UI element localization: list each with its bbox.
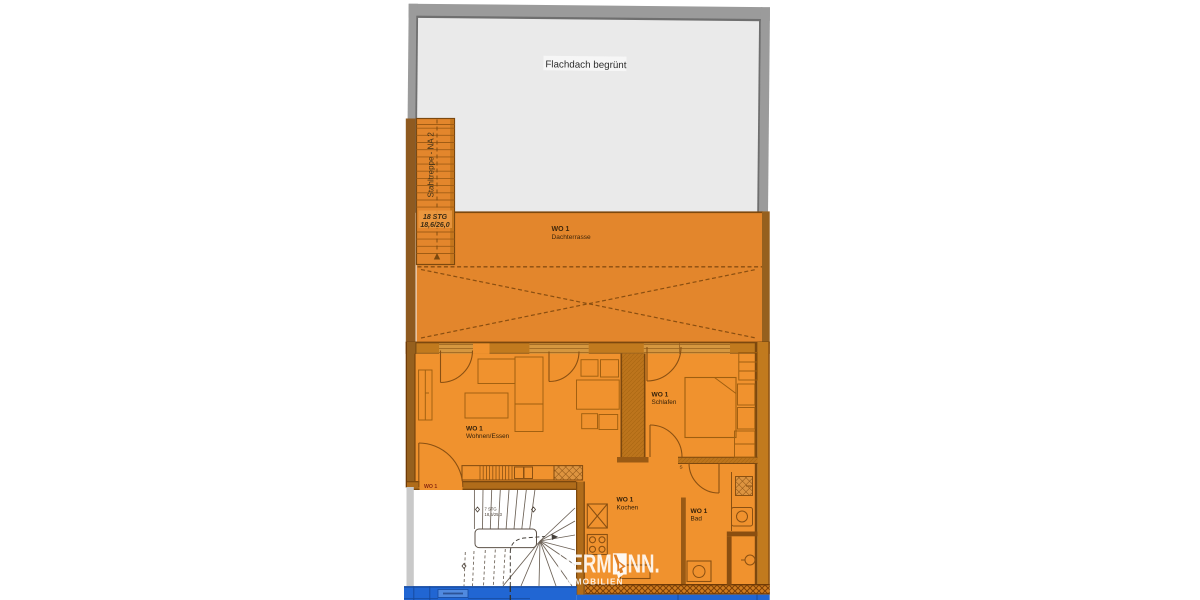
svg-text:WO 1: WO 1 bbox=[466, 426, 483, 433]
svg-text:IMMOBILIEN: IMMOBILIEN bbox=[563, 577, 623, 586]
svg-text:18,5/25,3: 18,5/25,3 bbox=[485, 512, 503, 517]
svg-text:HERM: HERM bbox=[557, 550, 612, 579]
svg-text:Kochen: Kochen bbox=[617, 505, 639, 512]
svg-text:WO 1: WO 1 bbox=[652, 392, 669, 399]
svg-text:18 STG: 18 STG bbox=[423, 214, 448, 221]
svg-text:Flachdach begrünt: Flachdach begrünt bbox=[545, 59, 627, 71]
svg-text:Schlafen: Schlafen bbox=[652, 399, 677, 406]
svg-text:WO 1: WO 1 bbox=[691, 508, 708, 515]
svg-text:NN.: NN. bbox=[628, 550, 660, 579]
svg-text:WO 1: WO 1 bbox=[552, 226, 570, 233]
svg-text:18,6/26,0: 18,6/26,0 bbox=[420, 222, 449, 229]
svg-text:7 STG: 7 STG bbox=[485, 507, 497, 512]
svg-text:WO 1: WO 1 bbox=[424, 484, 437, 490]
svg-text:Bad: Bad bbox=[691, 516, 703, 523]
svg-text:Stahltreppe - NA 2: Stahltreppe - NA 2 bbox=[427, 132, 436, 198]
svg-text:Wohnen/Essen: Wohnen/Essen bbox=[466, 433, 510, 440]
svg-text:Dachterrasse: Dachterrasse bbox=[552, 234, 592, 241]
svg-text:WO 1: WO 1 bbox=[617, 497, 634, 504]
svg-text:S: S bbox=[680, 465, 683, 470]
